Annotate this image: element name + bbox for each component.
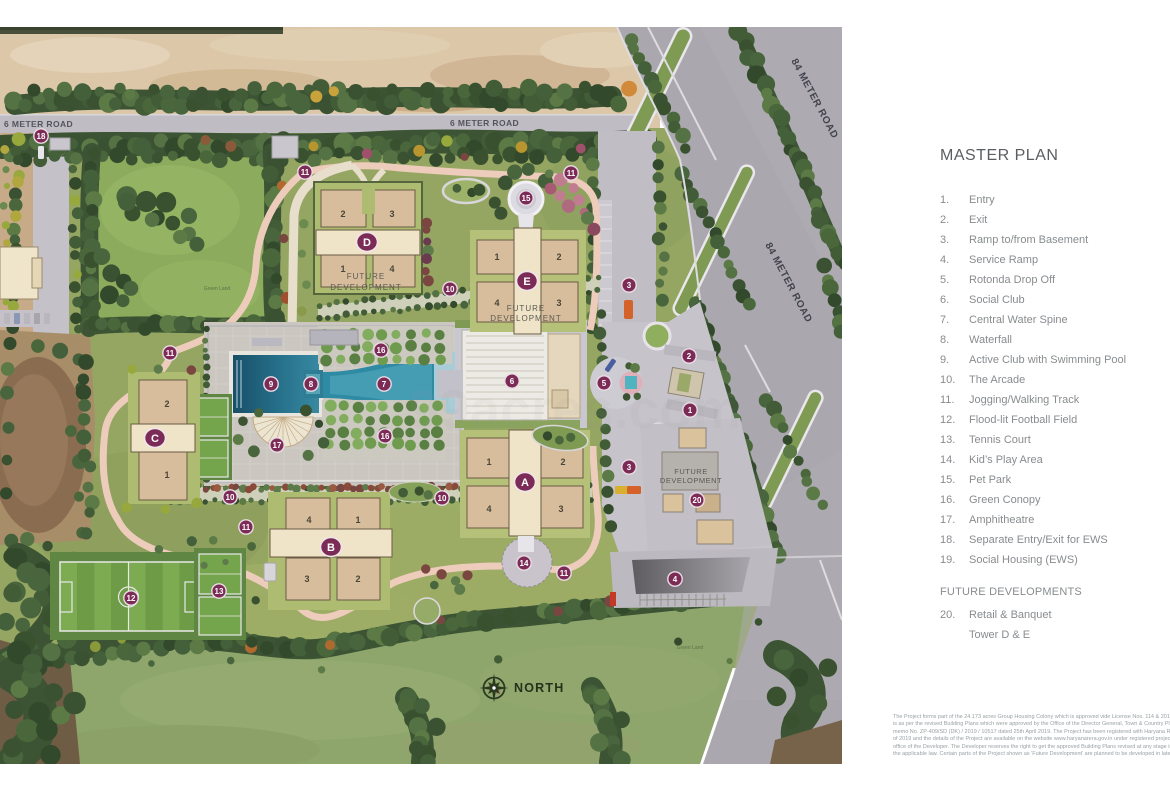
svg-text:13: 13 xyxy=(215,587,224,596)
svg-text:DEVELOPMENT: DEVELOPMENT xyxy=(490,314,561,323)
svg-text:4: 4 xyxy=(389,264,394,274)
svg-text:6: 6 xyxy=(510,377,515,386)
svg-text:7: 7 xyxy=(382,380,387,389)
svg-text:B: B xyxy=(327,542,335,554)
svg-text:3: 3 xyxy=(558,504,563,514)
svg-text:E: E xyxy=(523,276,530,288)
svg-text:2: 2 xyxy=(560,457,565,467)
svg-text:16: 16 xyxy=(377,346,386,355)
svg-text:10: 10 xyxy=(446,285,455,294)
svg-text:14: 14 xyxy=(520,559,529,568)
svg-text:1: 1 xyxy=(494,252,499,262)
svg-text:DEVELOPMENT: DEVELOPMENT xyxy=(330,283,401,292)
svg-text:9: 9 xyxy=(269,380,274,389)
svg-text:DEVELOPMENT: DEVELOPMENT xyxy=(660,476,722,485)
svg-text:8: 8 xyxy=(309,380,314,389)
svg-text:2: 2 xyxy=(164,399,169,409)
svg-text:1: 1 xyxy=(688,406,693,415)
svg-text:11: 11 xyxy=(301,168,310,177)
svg-text:11: 11 xyxy=(166,349,175,358)
svg-text:A: A xyxy=(521,477,529,489)
svg-text:2: 2 xyxy=(556,252,561,262)
svg-text:D: D xyxy=(363,237,371,249)
svg-text:15: 15 xyxy=(522,194,531,203)
svg-text:11: 11 xyxy=(560,569,569,578)
svg-text:18: 18 xyxy=(37,132,46,141)
svg-text:2: 2 xyxy=(340,209,345,219)
svg-text:C: C xyxy=(151,433,159,445)
svg-text:16: 16 xyxy=(381,432,390,441)
svg-text:10: 10 xyxy=(438,494,447,503)
svg-text:17: 17 xyxy=(273,441,282,450)
svg-text:3: 3 xyxy=(556,298,561,308)
svg-text:6 METER ROAD: 6 METER ROAD xyxy=(450,118,519,128)
svg-text:20: 20 xyxy=(693,496,702,505)
svg-text:3: 3 xyxy=(627,281,632,290)
svg-text:10: 10 xyxy=(226,493,235,502)
svg-text:5: 5 xyxy=(602,379,607,388)
svg-text:Green Land: Green Land xyxy=(204,286,231,292)
svg-text:NORTH: NORTH xyxy=(514,681,564,695)
svg-text:FUTURE: FUTURE xyxy=(347,272,385,281)
svg-text:2: 2 xyxy=(355,574,360,584)
svg-text:3: 3 xyxy=(304,574,309,584)
svg-text:4: 4 xyxy=(494,298,499,308)
svg-text:Green Land: Green Land xyxy=(677,645,704,651)
svg-text:1: 1 xyxy=(486,457,491,467)
svg-text:3: 3 xyxy=(389,209,394,219)
svg-text:3: 3 xyxy=(627,463,632,472)
svg-text:6 METER ROAD: 6 METER ROAD xyxy=(4,119,73,129)
svg-text:11: 11 xyxy=(242,523,251,532)
svg-text:FUTURE: FUTURE xyxy=(674,467,707,476)
svg-text:4: 4 xyxy=(306,515,311,525)
svg-text:FUTURE: FUTURE xyxy=(507,304,545,313)
svg-text:12: 12 xyxy=(127,594,136,603)
svg-text:4: 4 xyxy=(673,575,678,584)
svg-text:1: 1 xyxy=(340,264,345,274)
svg-text:2: 2 xyxy=(687,352,692,361)
svg-text:1: 1 xyxy=(164,470,169,480)
svg-text:4: 4 xyxy=(486,504,491,514)
svg-text:1: 1 xyxy=(355,515,360,525)
svg-text:11: 11 xyxy=(567,169,576,178)
